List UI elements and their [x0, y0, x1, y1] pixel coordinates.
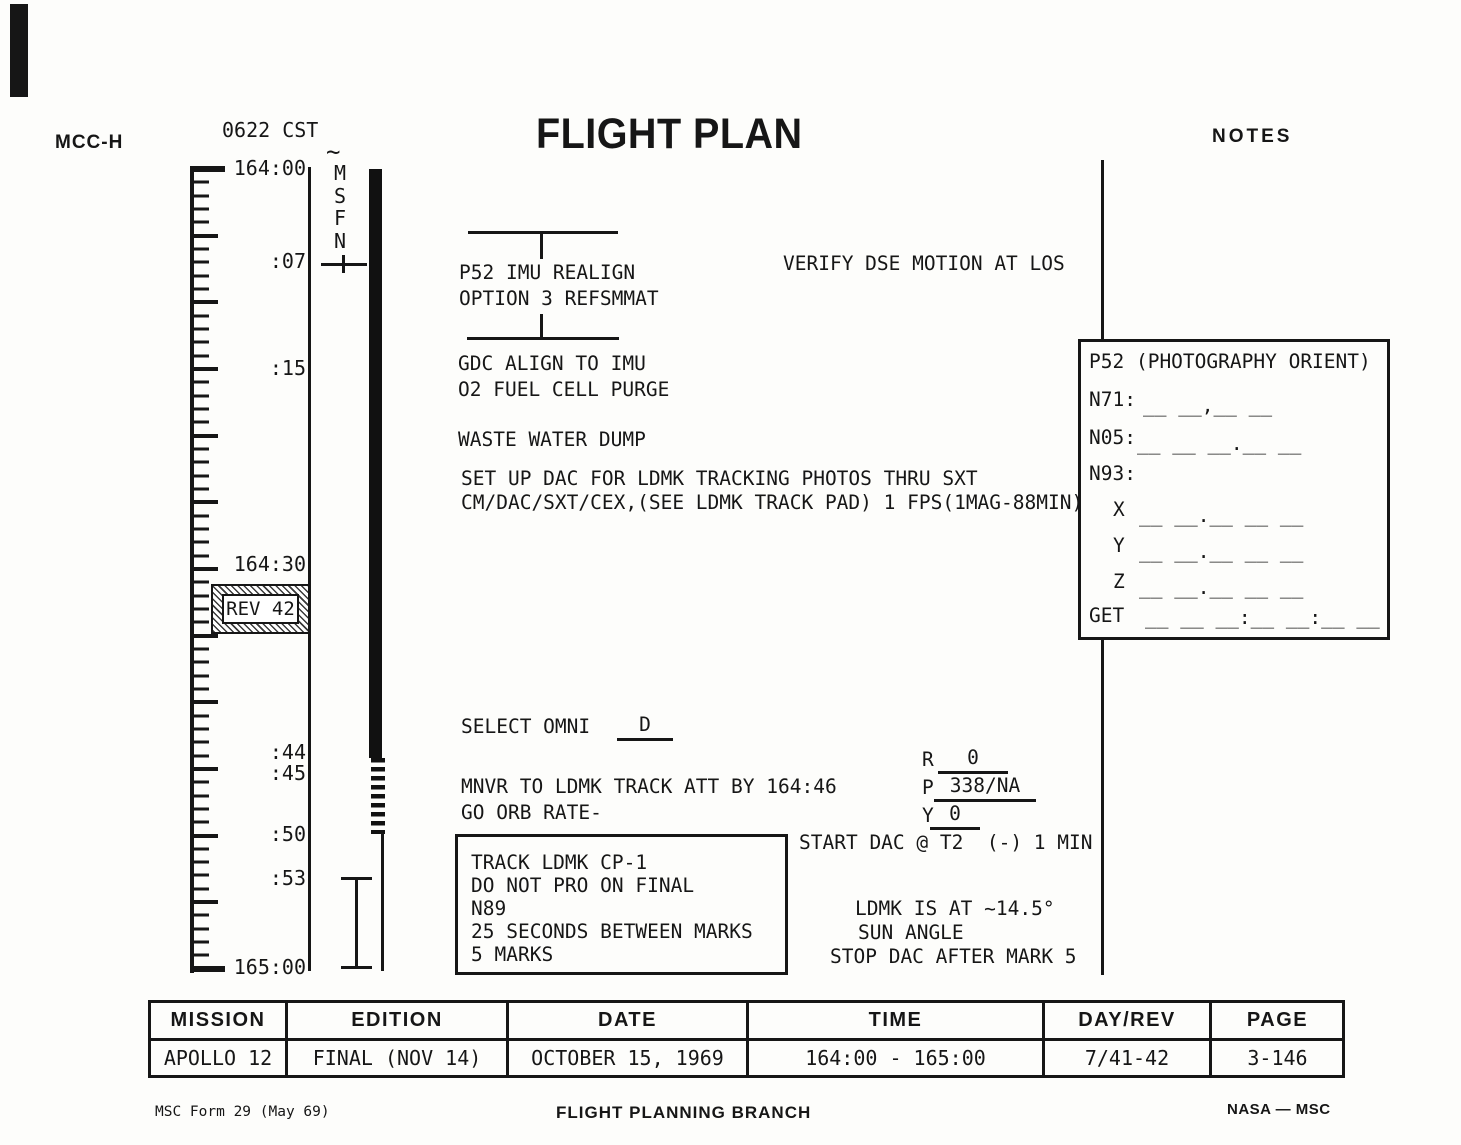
att-value-r: 0: [938, 746, 1008, 774]
rev-badge-label: REV 42: [222, 594, 299, 624]
track-box-line: TRACK LDMK CP-1: [471, 851, 647, 874]
table-value-page: 3-146: [1212, 1041, 1343, 1075]
timeline-mark-label: :53: [214, 867, 306, 889]
select-omni-label: SELECT OMNI: [461, 715, 590, 738]
rev-badge: REV 42: [211, 584, 310, 634]
msfn-coverage-bar-dashed: [371, 758, 385, 834]
activity-dac-setup-2: CM/DAC/SXT/CEX,(SEE LDMK TRACK PAD) 1 FP…: [461, 491, 1083, 514]
station-label: MCC-H: [55, 131, 123, 154]
connector-line-bottom: [467, 337, 619, 340]
connector-stem-bottom: [540, 314, 543, 339]
p52-pad-box: P52 (PHOTOGRAPHY ORIENT) N71: __ __,__ _…: [1078, 339, 1390, 640]
track-box-line: 25 SECONDS BETWEEN MARKS: [471, 920, 753, 943]
note-stop-dac: STOP DAC AFTER MARK 5: [830, 945, 1077, 968]
table-value-time: 164:00 - 165:00: [749, 1041, 1045, 1075]
p52-row-label: Y: [1113, 534, 1125, 557]
table-header-page: PAGE: [1212, 1003, 1343, 1041]
timeline-divider-line: [308, 167, 311, 971]
go-orb-rate: GO ORB RATE-: [461, 801, 602, 824]
table-value-edition: FINAL (NOV 14): [288, 1041, 509, 1075]
activity-p52-option: OPTION 3 REFSMMAT: [459, 287, 659, 310]
p52-row-blank: __ __.__ __ __: [1139, 576, 1303, 599]
flight-plan-page: MCC-H 0622 CST FLIGHT PLAN NOTES 164:00 …: [0, 0, 1461, 1145]
table-value-mission: APOLLO 12: [151, 1041, 288, 1075]
p52-row-label: N71:: [1089, 388, 1136, 411]
msfn-end-marker-stem: [342, 255, 345, 273]
omni-value: D: [617, 713, 673, 741]
connector-line-top: [468, 231, 618, 234]
p52-row-blank: __ __ __.__ __: [1137, 432, 1301, 455]
note-start-dac: START DAC @ T2 (-) 1 MIN: [799, 831, 1093, 854]
track-box-line: N89: [471, 897, 506, 920]
table-header-dayrev: DAY/REV: [1045, 1003, 1212, 1041]
att-value-p: 338/NA: [934, 774, 1036, 802]
msfn-label: M S F N: [331, 162, 349, 252]
msfn-coverage-bar: [369, 169, 382, 758]
p52-row-label: N93:: [1089, 462, 1136, 485]
p52-row-blank: __ __.__ __ __: [1139, 504, 1303, 527]
table-header-mission: MISSION: [151, 1003, 288, 1041]
scan-artifact-bar: [10, 4, 28, 97]
att-value-y: 0: [930, 802, 980, 830]
cst-time: 0622 CST: [222, 119, 318, 142]
page-title: FLIGHT PLAN: [536, 110, 803, 159]
att-axis-r: R: [922, 748, 934, 771]
activity-bracket-stem: [355, 877, 358, 969]
activity-dac-setup-1: SET UP DAC FOR LDMK TRACKING PHOTOS THRU…: [461, 467, 978, 490]
timeline-end-label: 165:00: [214, 956, 306, 978]
activity-p52-realign: P52 IMU REALIGN: [459, 261, 635, 284]
note-ldmk-sun-angle-2: SUN ANGLE: [858, 921, 964, 944]
track-box-line: DO NOT PRO ON FINAL: [471, 874, 694, 897]
table-header-edition: EDITION: [288, 1003, 509, 1041]
msfn-coverage-line: [381, 833, 384, 971]
timeline-mark-label: :44: [214, 741, 306, 763]
timeline-mark-label: :45: [214, 762, 306, 784]
p52-row-label: GET: [1089, 604, 1124, 627]
timeline-mark-label: :50: [214, 823, 306, 845]
form-number: MSC Form 29 (May 69): [155, 1104, 330, 1120]
p52-row-blank: __ __,__ __: [1143, 394, 1272, 417]
timeline-start-label: 164:00: [214, 157, 306, 179]
table-header-time: TIME: [749, 1003, 1045, 1041]
activity-bracket-bottom: [341, 966, 372, 969]
mission-info-table: MISSION EDITION DATE TIME DAY/REV PAGE A…: [148, 1000, 1345, 1078]
p52-pad-title: P52 (PHOTOGRAPHY ORIENT): [1089, 350, 1371, 373]
track-ldmk-box: TRACK LDMK CP-1 DO NOT PRO ON FINAL N89 …: [455, 834, 788, 975]
agency-label: NASA — MSC: [1227, 1098, 1331, 1121]
p52-row-blank: __ __ __:__ __:__ __: [1145, 606, 1380, 629]
track-box-line: 5 MARKS: [471, 943, 553, 966]
p52-row-label: Z: [1113, 570, 1125, 593]
timeline-mark-label: 164:30: [214, 553, 306, 575]
branch-label: FLIGHT PLANNING BRANCH: [556, 1101, 811, 1124]
note-ldmk-sun-angle-1: LDMK IS AT ~14.5°: [855, 897, 1055, 920]
table-value-date: OCTOBER 15, 1969: [509, 1041, 749, 1075]
table-value-dayrev: 7/41-42: [1045, 1041, 1212, 1075]
connector-stem-top: [540, 231, 543, 259]
timeline-mark-label: :15: [214, 357, 306, 379]
p52-row-blank: __ __.__ __ __: [1139, 540, 1303, 563]
notes-column-header: NOTES: [1212, 125, 1292, 148]
activity-o2-purge: O2 FUEL CELL PURGE: [458, 378, 669, 401]
activity-gdc-align: GDC ALIGN TO IMU: [458, 352, 646, 375]
p52-row-label: N05:: [1089, 426, 1136, 449]
p52-row-label: X: [1113, 498, 1125, 521]
timeline-mark-label: :07: [214, 250, 306, 272]
att-axis-p: P: [922, 776, 934, 799]
mnvr-instruction: MNVR TO LDMK TRACK ATT BY 164:46: [461, 775, 837, 798]
table-header-date: DATE: [509, 1003, 749, 1041]
note-verify-dse: VERIFY DSE MOTION AT LOS: [783, 252, 1065, 275]
activity-waste-dump: WASTE WATER DUMP: [458, 428, 646, 451]
